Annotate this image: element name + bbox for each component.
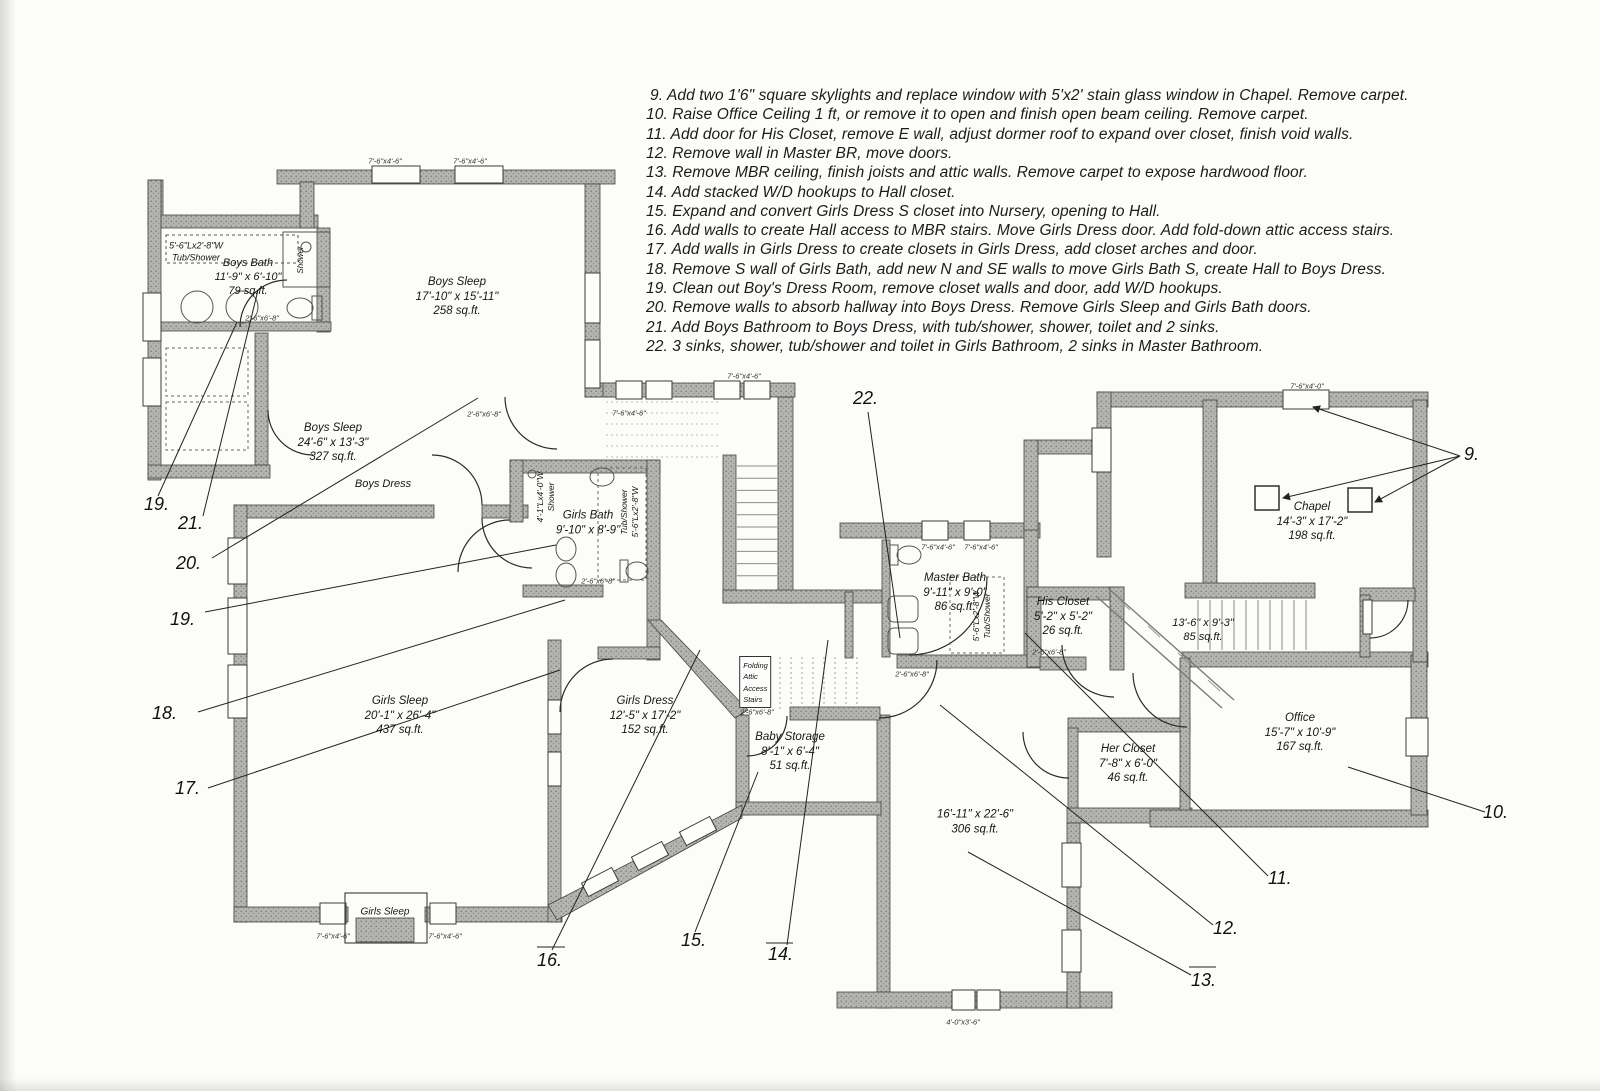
- callout-19: 19.: [144, 494, 169, 515]
- callout-14: 14.: [768, 944, 793, 965]
- room-label-line: Girls Dress: [610, 694, 681, 709]
- note-item: 19. Clean out Boy's Dress Room, remove c…: [646, 280, 1223, 298]
- room-label-line: 437 sq.ft.: [365, 723, 436, 738]
- room-label-folding-attic-stairs: FoldingAtticAccessStairs: [739, 656, 771, 708]
- note-item: 21. Add Boys Bathroom to Boys Dress, wit…: [646, 319, 1220, 337]
- window-dimension-tag: 7'-6"x4'-6": [368, 157, 402, 166]
- room-label-line: 5'-6"Lx2'-8"W: [630, 487, 641, 538]
- room-label-line: Baby Storage: [755, 730, 825, 745]
- room-label-line: Tub/Shower: [982, 591, 993, 642]
- room-label-line: Chapel: [1277, 500, 1348, 515]
- note-item: 17. Add walls in Girls Dress to create c…: [646, 241, 1258, 259]
- room-label-line: Access: [743, 683, 768, 694]
- note-item: 16. Add walls to create Hall access to M…: [646, 222, 1394, 240]
- room-label-line: Shower: [546, 472, 557, 523]
- room-label-line: Master Bath: [923, 571, 986, 586]
- window-dimension-tag: 2'-6"x6'-8": [740, 708, 774, 717]
- room-label-line: Girls Bath: [556, 508, 620, 523]
- room-label-line: Stairs: [743, 694, 768, 705]
- room-label-line: 13'-6" x 9'-3": [1172, 616, 1234, 630]
- room-label-boys-bath: Boys Bath11'-9" x 6'-10"79 sq.ft.: [215, 256, 282, 298]
- room-label-line: Her Closet: [1099, 742, 1157, 757]
- room-label-line: 4'-1"Lx4'-0"W: [535, 472, 546, 523]
- window-dimension-tag: 2'-6"x6'-8": [467, 410, 501, 419]
- room-label-line: 306 sq.ft.: [937, 822, 1013, 837]
- room-label-line: 11'-9" x 6'-10": [215, 270, 282, 284]
- callout-9: 9.: [1464, 444, 1479, 465]
- room-label-line: 167 sq.ft.: [1265, 740, 1336, 755]
- note-item: 10. Raise Office Ceiling 1 ft, or remove…: [646, 106, 1309, 124]
- room-label-line: 26 sq.ft.: [1034, 624, 1092, 639]
- callout-15: 15.: [681, 930, 706, 951]
- room-label-line: 5'-6"Lx2'-8"W: [971, 591, 982, 642]
- window-dimension-tag: 2'-6"x6'-8": [581, 577, 615, 586]
- room-label-line: Office: [1265, 711, 1336, 726]
- room-label-girls-bath: Girls Bath9'-10" x 8'-9": [556, 508, 620, 537]
- room-label-baby-storage: Baby Storage8'-1" x 6'-4"51 sq.ft.: [755, 730, 825, 774]
- note-item: 9. Add two 1'6" square skylights and rep…: [650, 87, 1409, 105]
- window-dimension-tag: 7'-6"x4'-6": [921, 543, 955, 552]
- callout-11: 11.: [1268, 868, 1292, 889]
- room-label-chapel: Chapel14'-3" x 17'-2"198 sq.ft.: [1277, 500, 1348, 544]
- room-label-girls-dress: Girls Dress12'-5" x 17'-2"152 sq.ft.: [610, 694, 681, 738]
- note-item: 20. Remove walls to absorb hallway into …: [646, 299, 1312, 317]
- room-label-line: 198 sq.ft.: [1277, 529, 1348, 544]
- room-label-line: Boys Sleep: [416, 275, 499, 290]
- note-item: 22. 3 sinks, shower, tub/shower and toil…: [646, 338, 1263, 356]
- room-label-line: 8'-1" x 6'-4": [755, 745, 825, 760]
- room-label-line: 20'-1" x 26'-4": [365, 709, 436, 724]
- window-dimension-tag: 2'-6"x6'-8": [1032, 648, 1066, 657]
- window-dimension-tag: 7'-6"x4'-0": [1290, 382, 1324, 391]
- callout-10: 10.: [1483, 802, 1508, 823]
- room-label-line: 16'-11" x 22'-6": [937, 807, 1013, 822]
- room-label-line: 17'-10" x 15'-11": [416, 290, 499, 305]
- room-label-line: 7'-8" x 6'-0": [1099, 757, 1157, 772]
- room-label-line: Folding: [743, 660, 768, 671]
- room-label-his-closet: His Closet5'-2" x 5'-2"26 sq.ft.: [1034, 595, 1092, 639]
- room-label-line: Attic: [743, 671, 768, 682]
- room-label-line: Shower: [296, 246, 306, 273]
- note-item: 15. Expand and convert Girls Dress S clo…: [646, 203, 1161, 221]
- room-label-boys-sleep-2: Boys Sleep24'-6" x 13'-3"327 sq.ft.: [298, 421, 369, 465]
- room-label-line: 24'-6" x 13'-3": [298, 436, 369, 451]
- room-label-line: 12'-5" x 17'-2": [610, 709, 681, 724]
- scanned-floor-plan-page: 9. Add two 1'6" square skylights and rep…: [0, 0, 1600, 1091]
- room-label-girls-sleep-bay: Girls Sleep: [361, 907, 410, 920]
- room-label-line: 15'-7" x 10'-9": [1265, 726, 1336, 741]
- room-label-line: 152 sq.ft.: [610, 723, 681, 738]
- window-dimension-tag: 7'-6"x4'-6": [316, 932, 350, 941]
- window-dimension-tag: 7'-6"x4'-6": [453, 157, 487, 166]
- callout-12: 12.: [1213, 918, 1238, 939]
- room-label-line: 5'-2" x 5'-2": [1034, 610, 1092, 625]
- note-item: 18. Remove S wall of Girls Bath, add new…: [646, 261, 1386, 279]
- callout-19: 19.: [170, 609, 195, 630]
- room-label-line: 46 sq.ft.: [1099, 771, 1157, 786]
- room-label-line: 327 sq.ft.: [298, 450, 369, 465]
- room-label-line: 14'-3" x 17'-2": [1277, 515, 1348, 530]
- room-label-her-closet: Her Closet7'-8" x 6'-0"46 sq.ft.: [1099, 742, 1157, 786]
- room-label-boys-dress: Boys Dress: [355, 477, 411, 491]
- room-label-line: 258 sq.ft.: [416, 304, 499, 319]
- room-label-master-tub: 5'-6"Lx2'-8"WTub/Shower: [971, 591, 993, 642]
- room-label-boys-sleep-1: Boys Sleep17'-10" x 15'-11"258 sq.ft.: [416, 275, 499, 319]
- room-label-line: 79 sq.ft.: [215, 284, 282, 298]
- note-item: 11. Add door for His Closet, remove E wa…: [646, 126, 1353, 144]
- room-label-line: Boys Bath: [215, 256, 282, 270]
- window-dimension-tag: 2'-6"x6'-8": [245, 314, 279, 323]
- window-dimension-tag: 2'-6"x6'-8": [895, 670, 929, 679]
- callout-18: 18.: [152, 703, 177, 724]
- note-item: 14. Add stacked W/D hookups to Hall clos…: [646, 184, 956, 202]
- room-label-line: Girls Sleep: [365, 694, 436, 709]
- room-label-girls-tub: Tub/Shower5'-6"Lx2'-8"W: [619, 487, 641, 538]
- room-label-line: Tub/Shower: [619, 487, 630, 538]
- note-item: 12. Remove wall in Master BR, move doors…: [646, 145, 952, 163]
- room-label-line: Boys Dress: [355, 477, 411, 491]
- callout-22: 22.: [853, 388, 878, 409]
- callout-20: 20.: [176, 553, 201, 574]
- callout-13: 13.: [1191, 970, 1216, 991]
- room-label-girls-shower: 4'-1"Lx4'-0"WShower: [535, 472, 557, 523]
- note-item: 13. Remove MBR ceiling, finish joists an…: [646, 164, 1308, 182]
- window-dimension-tag: 7'-6"x4'-6": [428, 932, 462, 941]
- callout-21: 21.: [178, 513, 203, 534]
- room-label-line: 5'-6"Lx2'-8"W: [169, 240, 223, 252]
- window-dimension-tag: 7'-6"x4'-6": [727, 372, 761, 381]
- room-label-boys-shower: Shower: [296, 246, 306, 273]
- room-label-master-br: 16'-11" x 22'-6"306 sq.ft.: [937, 807, 1013, 836]
- window-dimension-tag: 7'-6"x4'-6": [612, 409, 646, 418]
- window-dimension-tag: 7'-6"x4'-6": [964, 543, 998, 552]
- room-label-line: Girls Sleep: [361, 907, 410, 920]
- room-label-line: His Closet: [1034, 595, 1092, 610]
- room-label-girls-sleep: Girls Sleep20'-1" x 26'-4"437 sq.ft.: [365, 694, 436, 738]
- callout-17: 17.: [175, 778, 200, 799]
- room-label-office: Office15'-7" x 10'-9"167 sq.ft.: [1265, 711, 1336, 755]
- room-label-line: Boys Sleep: [298, 421, 369, 436]
- callout-16: 16.: [537, 950, 562, 971]
- room-label-line: 9'-10" x 8'-9": [556, 523, 620, 538]
- room-label-line: 51 sq.ft.: [755, 759, 825, 774]
- room-label-line: 85 sq.ft.: [1172, 630, 1234, 644]
- room-label-mbr-stairs: 13'-6" x 9'-3"85 sq.ft.: [1172, 616, 1234, 644]
- window-dimension-tag: 4'-0"x3'-6": [946, 1018, 980, 1027]
